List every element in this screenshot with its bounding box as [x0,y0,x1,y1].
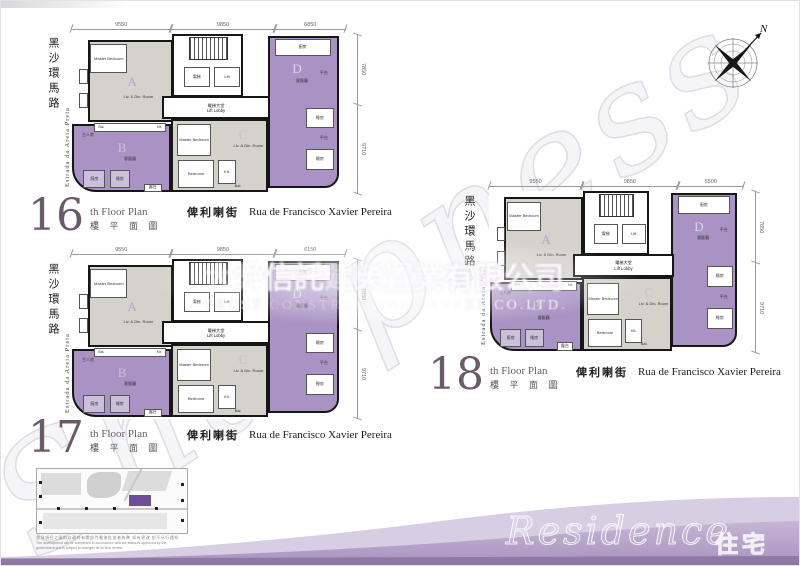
kitchen-label: Kit. [568,284,573,288]
svg-text:N: N [759,23,768,35]
floor-number: 18 [428,356,484,393]
livdin-label-b: 客飯廳 [529,316,560,320]
livdin-label-d: 客飯廳 [688,236,719,240]
street-label-pt: Rua de Francisco Xavier Pereira [638,366,781,378]
room-bedroom-c: Bedroom [588,319,621,347]
room-bedroom-b: 睡房 [525,329,544,348]
dimension-line-top: 9550 9850 5500 [489,171,744,187]
livdin-label-a: Liv. & Din. Room [525,253,579,257]
dimension-value: 9850 [582,179,678,185]
dimension-line-right: 7850 9710 [749,191,767,353]
dimension-value: 7850 [758,221,764,233]
room-master-bedroom-a: Master Bedroom [507,202,541,231]
residence-script-label: Residence [506,509,731,553]
lift-lobby: 電梯大堂 Lift Lobby [573,254,674,277]
map-block [41,473,81,495]
room-master-bedroom-c: Master Bedroom [587,283,619,315]
dimension-value: 9550 [489,179,582,185]
balcony-label: Bal. [515,284,521,288]
bay-window [497,227,505,242]
livdin-label-c: Liv. & Din. Room [632,302,675,306]
balcony-kitchen-strip: Bal. Kit. [511,281,577,291]
unit-letter-c: C [645,285,654,301]
unit-letter-d: D [694,219,703,235]
floor-title-cn: 樓 平 面 圖 [490,378,562,391]
road-label-left: 黑沙環馬路 Estrada da Areia Preta [461,195,487,345]
floor-title-en: th Floor Plan [490,365,562,377]
terrace-label: 平台 [720,295,728,299]
lift-en: Lift [622,224,646,244]
room-kitchen-d: 廚房 [678,196,730,214]
unit-letter-a: A [541,232,550,248]
floor-title: 18 th Floor Plan 樓 平 面 圖 [428,356,562,393]
road-label-cn: 黑沙環馬路 [461,195,477,345]
room-kitchen-b: 廚房 [500,329,520,348]
terrace-label: 平台 [720,228,728,232]
master-room-label-b: 主人房 [499,291,511,295]
street-label-cn: 俾利喇街 [576,364,628,380]
map-marker [39,481,42,484]
floor-plan: 9550 9850 5500 電梯大堂 Lift Lobby 電梯 Lift M… [489,171,770,359]
floor-plan-sheet: Sharpness 9550 9850 6850 電梯大堂 Lift Lobby… [0,0,800,566]
dimension-value: 9710 [758,302,764,314]
staircase [599,194,635,217]
room-kitchen-c: Kit. [625,319,642,343]
lift-cn: 電梯 [594,224,618,244]
dimension-value: 5500 [678,179,744,185]
compass-rose-icon: N [699,21,771,97]
plan-body: 電梯大堂 Lift Lobby 電梯 Lift Master Bedroom B… [489,191,744,353]
balcony-label-c: Bal. [641,342,648,346]
map-marker [181,483,184,486]
road-label-pt: Estrada da Areia Preta [480,199,487,345]
room-bedroom-d: 睡房 [707,308,733,329]
room-bedroom-d: 睡房 [707,266,733,287]
unit-letter-b: B [532,298,541,314]
residence-cn-label: 住宅 [715,525,769,559]
bay-window [497,251,505,266]
balcony-b: 露台 [557,342,574,350]
lift-lobby-en: Lift Lobby [614,266,632,271]
street-label-bottom: 俾利喇街 Rua de Francisco Xavier Pereira [576,364,781,380]
